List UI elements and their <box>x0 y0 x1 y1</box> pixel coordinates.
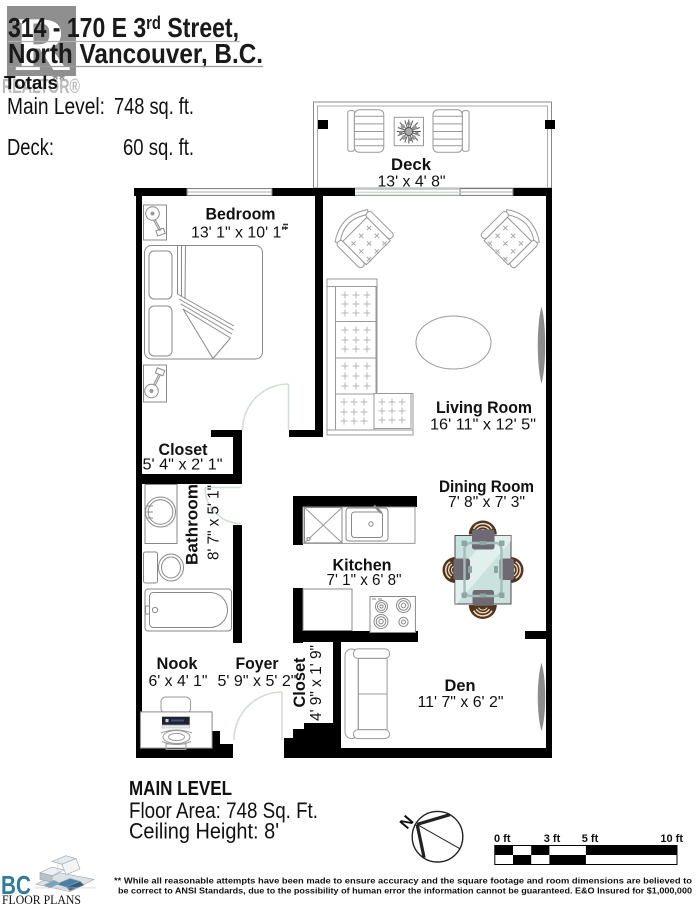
svg-text:748 sq. ft.: 748 sq. ft. <box>114 93 194 119</box>
svg-text:Bedroom: Bedroom <box>206 205 276 224</box>
svg-text:Living Room: Living Room <box>436 398 532 417</box>
svg-text:Closet: Closet <box>290 657 309 707</box>
svg-text:6' x 4' 1": 6' x 4' 1" <box>149 673 208 690</box>
svg-text:3 ft: 3 ft <box>544 833 561 845</box>
svg-text:Den: Den <box>445 676 476 695</box>
svg-text:**: ** <box>52 70 66 89</box>
svg-text:4' 9" x 1' 9": 4' 9" x 1' 9" <box>308 645 325 721</box>
svg-text:7' 1" x 6' 8": 7' 1" x 6' 8" <box>327 572 402 589</box>
svg-text:5' 9" x 5' 2": 5' 9" x 5' 2" <box>218 673 297 690</box>
svg-text:Bathroom: Bathroom <box>183 484 202 565</box>
svg-text:10 ft: 10 ft <box>660 833 683 845</box>
svg-text:be correct to ANSI Standards,: be correct to ANSI Standards, due to the… <box>118 887 693 896</box>
svg-text:16' 11" x 12' 5": 16' 11" x 12' 5" <box>430 417 536 434</box>
svg-text:11' 7" x 6' 2": 11' 7" x 6' 2" <box>418 694 504 711</box>
svg-text:8' 7" x 5' 1": 8' 7" x 5' 1" <box>206 485 223 560</box>
svg-text:North Vancouver, B.C.: North Vancouver, B.C. <box>8 38 263 69</box>
svg-text:7' 8" x 7' 3": 7' 8" x 7' 3" <box>448 494 525 511</box>
svg-text:Totals: Totals <box>4 73 58 93</box>
svg-text:0 ft: 0 ft <box>494 833 511 845</box>
svg-text:Deck: Deck <box>391 155 432 174</box>
svg-text:Nook: Nook <box>157 654 199 673</box>
svg-text:5 ft: 5 ft <box>582 833 599 845</box>
svg-text:Foyer: Foyer <box>236 654 279 673</box>
svg-text:** While all reasonable attemp: ** While all reasonable attempts have be… <box>114 877 692 886</box>
svg-text:5' 4" x 2' 1": 5' 4" x 2' 1" <box>143 457 223 474</box>
svg-text:Deck:: Deck: <box>7 134 54 160</box>
svg-text:MAIN LEVEL: MAIN LEVEL <box>129 778 232 800</box>
svg-text:60 sq. ft.: 60 sq. ft. <box>123 134 194 160</box>
svg-text:N: N <box>397 813 417 833</box>
svg-text:Main Level:: Main Level: <box>7 93 105 119</box>
svg-text:13' x 4' 8": 13' x 4' 8" <box>378 174 446 191</box>
svg-text:13' 1" x 10' 1": 13' 1" x 10' 1" <box>191 225 287 242</box>
svg-text:FLOOR PLANS: FLOOR PLANS <box>2 893 81 906</box>
svg-text:Ceiling Height: 8': Ceiling Height: 8' <box>129 819 279 844</box>
